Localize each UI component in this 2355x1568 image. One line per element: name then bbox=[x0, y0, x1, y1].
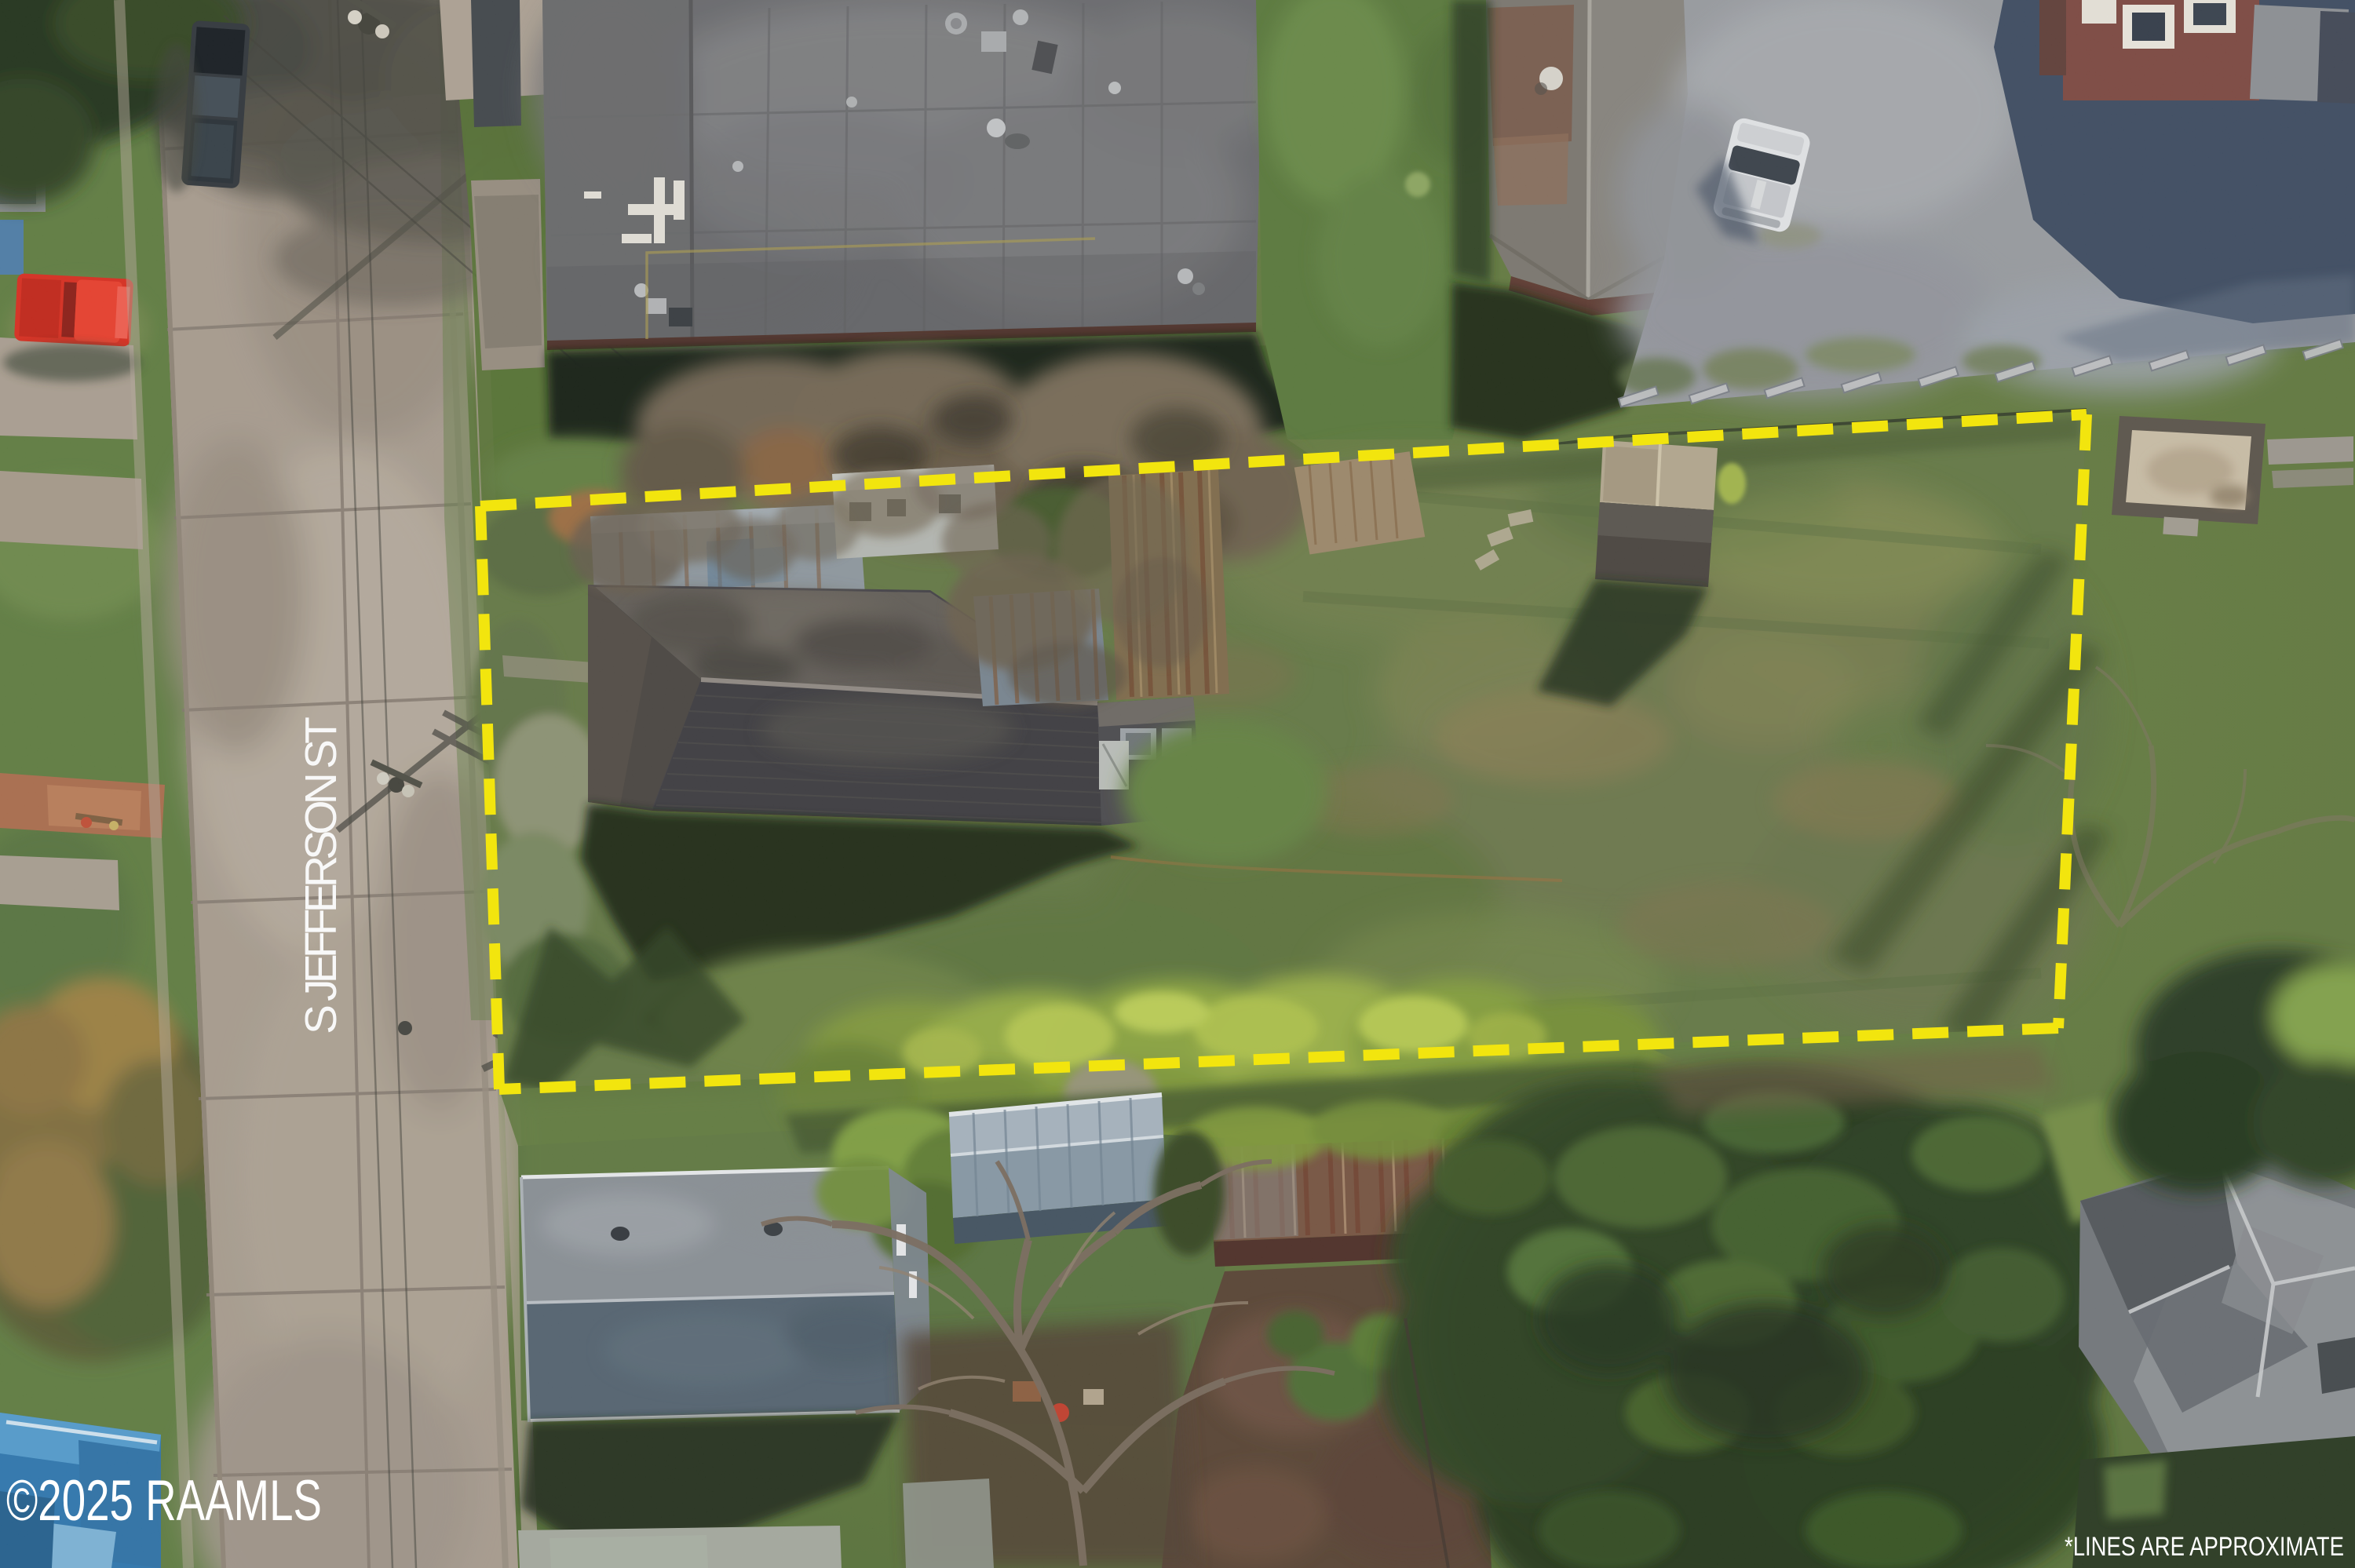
svg-text:©2025 RAAMLS: ©2025 RAAMLS bbox=[6, 1469, 322, 1533]
svg-text:*LINES ARE APPROXIMATE: *LINES ARE APPROXIMATE bbox=[2065, 1532, 2344, 1562]
